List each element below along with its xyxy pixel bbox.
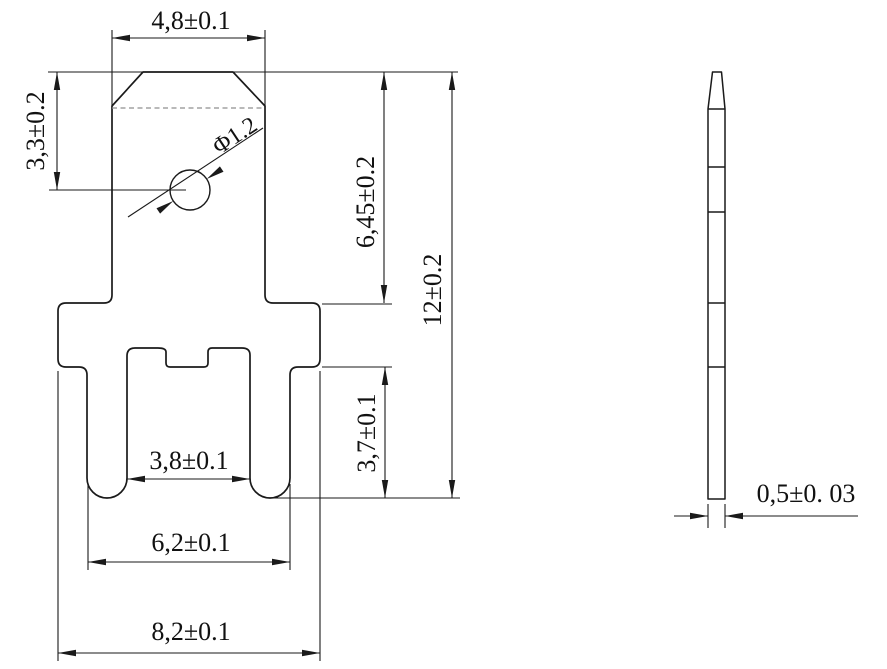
dim-label-hole-offset: 3,3±0.2 — [21, 91, 50, 170]
dimension-tab-width: 4,8±0.1 — [112, 6, 265, 41]
arrowhead-left-icon — [127, 476, 145, 482]
front-view — [58, 72, 320, 498]
dimension-overall-length: 12±0.2 — [418, 72, 455, 498]
dim-label-leg-length: 3,7±0.1 — [352, 393, 381, 472]
front-view-outline — [58, 72, 320, 498]
dim-label-slot-width: 3,8±0.1 — [149, 446, 228, 475]
arrowhead-up-icon — [382, 367, 388, 385]
arrowhead-left-icon — [112, 35, 130, 41]
arrowhead-right-icon — [247, 35, 265, 41]
dim-label-tab-length: 6,45±0.2 — [351, 156, 380, 248]
dimension-leg-length: 3,7±0.1 — [352, 367, 388, 498]
arrowhead-down-icon — [382, 480, 388, 498]
arrowhead-right-icon — [302, 650, 320, 656]
dim-label-tab-width: 4,8±0.1 — [151, 6, 230, 35]
arrowhead-down-icon — [381, 285, 387, 303]
arrowhead-up-icon — [449, 72, 455, 90]
dimension-tab-length: 6,45±0.2 — [351, 72, 387, 303]
dimension-thickness: 0,5±0. 03 — [674, 479, 858, 528]
technical-drawing-svg: 4,8±0.1 3,3±0.2 Φ1.2 6,45±0.2 12±0.2 3,7… — [0, 0, 887, 669]
dimension-hole-diameter: Φ1.2 — [128, 112, 263, 217]
dim-label-body-width: 8,2±0.1 — [151, 617, 230, 646]
dimension-leg-span: 6,2±0.1 — [88, 528, 290, 565]
dimension-slot-width: 3,8±0.1 — [127, 446, 250, 482]
dim-label-leg-span: 6,2±0.1 — [151, 528, 230, 557]
dim-label-thickness: 0,5±0. 03 — [757, 479, 856, 508]
arrowhead-right-icon — [272, 559, 290, 565]
arrowhead-right-icon — [232, 476, 250, 482]
arrowhead-lower-icon — [157, 201, 174, 214]
arrowhead-left-icon — [88, 559, 106, 565]
arrowhead-down-icon — [54, 172, 60, 190]
drawing-canvas: 4,8±0.1 3,3±0.2 Φ1.2 6,45±0.2 12±0.2 3,7… — [0, 0, 887, 669]
arrowhead-left-icon — [725, 513, 743, 519]
dim-label-hole-diameter: Φ1.2 — [208, 112, 262, 160]
arrowhead-down-icon — [449, 480, 455, 498]
side-view-outline — [708, 72, 725, 499]
arrowhead-right-icon — [690, 513, 708, 519]
arrowhead-up-icon — [381, 72, 387, 90]
dim-label-overall-length: 12±0.2 — [418, 254, 447, 327]
side-view — [708, 72, 725, 499]
arrowhead-up-icon — [54, 72, 60, 90]
arrowhead-upper-icon — [207, 166, 224, 179]
dimension-hole-offset: 3,3±0.2 — [21, 72, 60, 190]
arrowhead-left-icon — [58, 650, 76, 656]
dimension-body-width: 8,2±0.1 — [58, 617, 320, 656]
